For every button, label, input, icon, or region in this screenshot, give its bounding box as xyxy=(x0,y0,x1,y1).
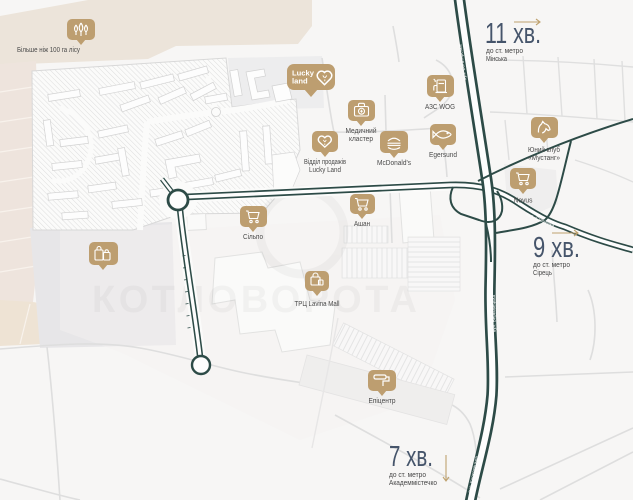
svg-text:«Мустанг»: «Мустанг» xyxy=(528,155,560,162)
svg-text:Lucky Land: Lucky Land xyxy=(309,167,341,174)
svg-text:Відділ продажів: Відділ продажів xyxy=(304,158,346,166)
svg-text:McDonald's: McDonald's xyxy=(377,160,411,167)
svg-text:Сільпо: Сільпо xyxy=(243,233,263,241)
svg-text:Академмістечко: Академмістечко xyxy=(389,478,437,487)
svg-text:7 хв.: 7 хв. xyxy=(389,441,433,473)
svg-text:Епіцентр: Епіцентр xyxy=(369,397,396,405)
svg-text:Мінська: Мінська xyxy=(486,54,507,63)
svg-text:Більше ніж 100 га лісу: Більше ніж 100 га лісу xyxy=(17,46,80,54)
svg-text:Медичний: Медичний xyxy=(346,127,377,135)
svg-text:КОТЛОВОРОТА: КОТЛОВОРОТА xyxy=(92,279,420,321)
svg-text:кластер: кластер xyxy=(349,136,373,143)
svg-text:Юний клуб: Юний клуб xyxy=(528,146,560,154)
svg-text:АЗС WOG: АЗС WOG xyxy=(425,104,455,111)
svg-text:land: land xyxy=(292,77,308,86)
svg-text:Egersund: Egersund xyxy=(429,152,457,159)
svg-text:ТРЦ Lavina Mall: ТРЦ Lavina Mall xyxy=(295,301,340,308)
svg-text:Ашан: Ашан xyxy=(354,221,370,228)
svg-text:вул. Берковецька: вул. Берковецька xyxy=(491,294,497,332)
svg-text:Сірець: Сірець xyxy=(533,268,552,277)
svg-text:Novus: Novus xyxy=(514,198,533,205)
